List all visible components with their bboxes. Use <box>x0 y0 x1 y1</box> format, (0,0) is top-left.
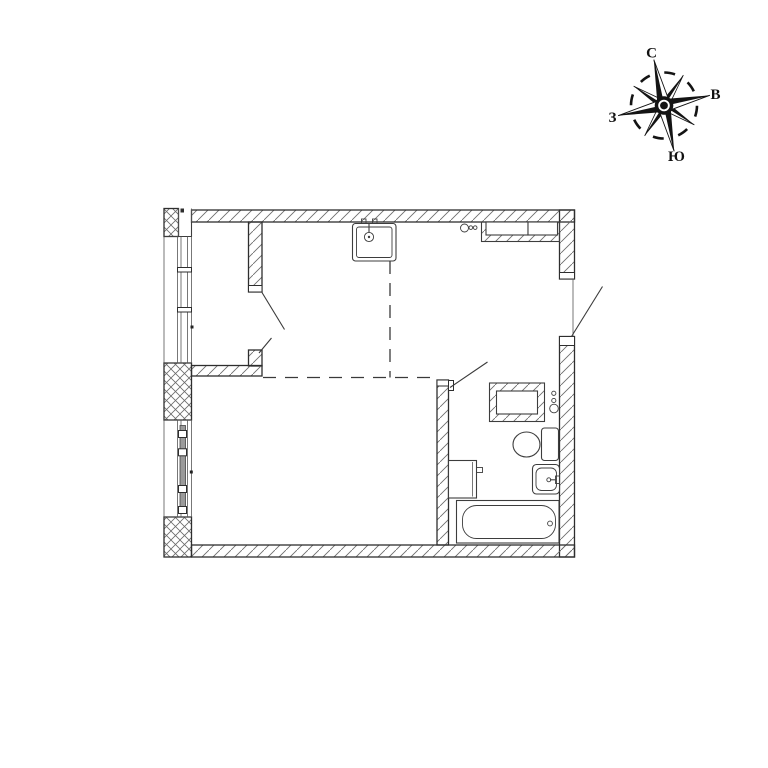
kitchen-risers <box>461 224 478 232</box>
riser-circle-small <box>552 391 556 395</box>
top-wall <box>192 210 575 222</box>
riser-circle-large <box>461 224 469 232</box>
window-mullion <box>178 268 192 273</box>
compass-label-west: З <box>609 110 617 126</box>
interior-walls <box>192 222 454 545</box>
washer-valve <box>477 468 483 473</box>
bathroom <box>449 383 560 543</box>
window-handle-dot <box>190 471 193 474</box>
right-wall-lower <box>560 337 575 558</box>
toilet-bowl <box>513 432 540 457</box>
bathtub <box>457 501 560 544</box>
bathroom-door-swing <box>450 362 488 388</box>
sink-outer <box>353 224 397 262</box>
room-door-swing <box>259 293 285 354</box>
kitchen-zone-dashed-boundary <box>263 261 437 378</box>
axis-tick <box>181 209 185 213</box>
sash-node <box>179 507 187 514</box>
washbasin <box>533 465 560 495</box>
washing-machine <box>449 461 483 499</box>
kitchen-sink <box>353 219 397 261</box>
compass-label-north: С <box>646 46 657 62</box>
window-mullion <box>178 308 192 313</box>
compass-label-east: В <box>710 87 720 103</box>
entrance-door-swing <box>572 279 603 337</box>
wall-pier-middle-left <box>164 363 192 420</box>
compass-star <box>608 49 720 161</box>
window-upper <box>164 237 194 364</box>
door-leaf-wide <box>262 293 285 330</box>
sash-node <box>179 449 187 456</box>
drawing-canvas: С В Ю З <box>0 0 768 768</box>
riser-circle-large <box>550 404 559 413</box>
sash-node <box>179 431 187 438</box>
compass-rose: С В Ю З <box>608 46 721 166</box>
sash-node <box>179 486 187 493</box>
room-partition-wall <box>249 222 263 292</box>
riser-circle-small <box>552 398 556 402</box>
room-divider-wall <box>192 366 263 377</box>
window-lower <box>164 420 193 517</box>
floor-plan-drawing: С В Ю З <box>0 0 768 768</box>
door-jamb-cap <box>249 286 263 293</box>
bathroom-risers <box>550 391 559 413</box>
door-leaf-narrow <box>259 338 272 353</box>
kitchen-vent-shaft <box>482 222 560 242</box>
toilet-tank <box>542 428 559 461</box>
bathroom-partition-wall <box>437 380 449 545</box>
bathroom-vent-shaft <box>490 383 545 422</box>
kitchen-zone <box>263 219 560 378</box>
riser-circle-small <box>473 226 477 230</box>
balcony-door-sash <box>180 426 186 514</box>
compass-label-south: Ю <box>668 149 685 165</box>
door-jamb-cap <box>560 337 575 346</box>
wall-pier-bottom-left <box>164 517 192 557</box>
vent-duct-opening <box>528 222 558 235</box>
vent-duct-opening <box>486 222 528 235</box>
vent-duct-opening <box>497 391 538 414</box>
door-jamb-cap <box>437 380 449 386</box>
toilet <box>513 428 559 461</box>
entrance-door-leaf <box>572 287 603 337</box>
faucet-dot <box>368 236 370 238</box>
doors <box>259 279 603 388</box>
bathtub-outer <box>457 501 560 544</box>
bottom-wall <box>192 545 575 557</box>
door-jamb-cap <box>560 273 575 280</box>
window-handle-dot <box>191 326 194 329</box>
right-wall-upper <box>560 210 575 279</box>
riser-circle-small <box>469 226 473 230</box>
wall-pier-top-left <box>164 209 179 237</box>
